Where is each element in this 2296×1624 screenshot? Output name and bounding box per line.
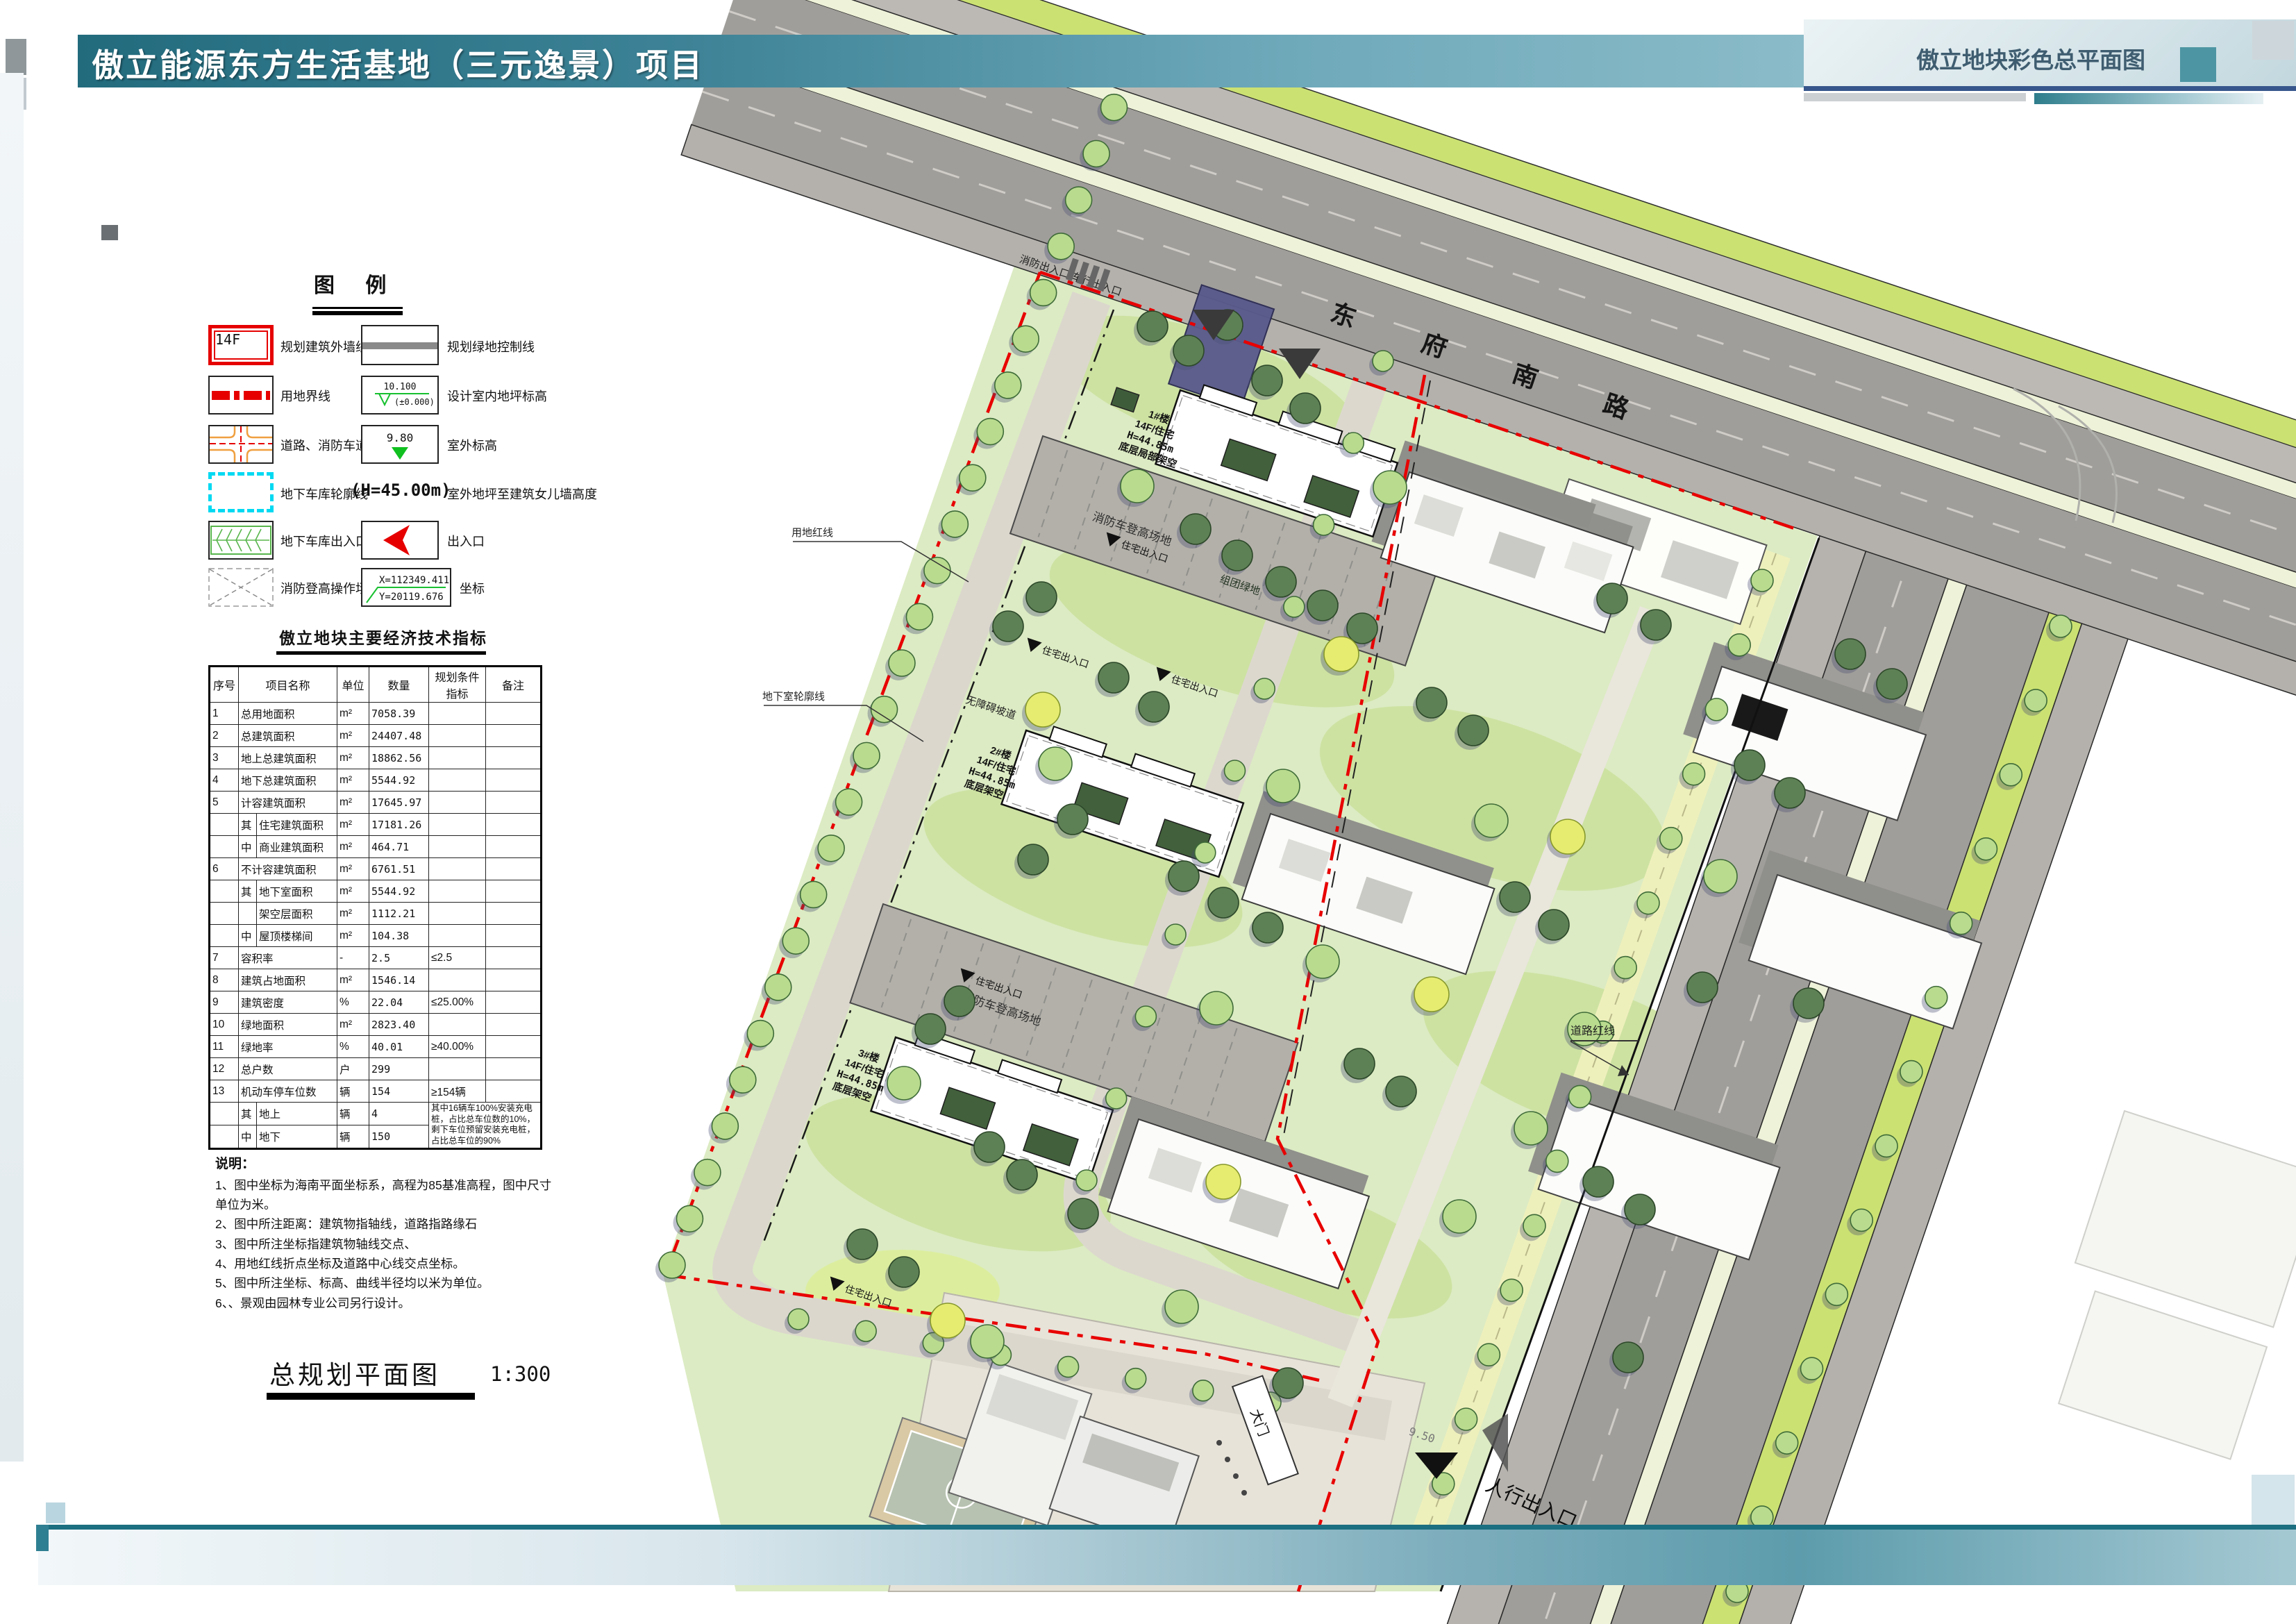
table-cell [239,903,257,925]
table-cell: 2.5 [369,947,429,969]
table-cell [429,1014,486,1036]
entrance-swatch [361,521,439,560]
economic-indicator-table: 序号 项目名称 单位 数量 规划条件指标 备注 1总用地面积m²7058.39 … [208,665,542,1150]
table-row: 11绿地率%40.01≥40.00% [210,1036,542,1058]
table-cell: 商业建筑面积 [257,836,337,858]
note-item: 6、、景观由园林专业公司另行设计。 [215,1294,562,1313]
table-cell: 计容建筑面积 [239,792,337,814]
table-cell: m² [337,814,369,836]
table-row: 4地下总建筑面积m²5544.92 [210,769,542,792]
indoor-elev-datum: (±0.000) [394,397,435,407]
table-cell: 总户数 [239,1058,337,1080]
table-cell: 2823.40 [369,1014,429,1036]
table-cell: 11 [210,1036,239,1058]
table-cell: 7 [210,947,239,969]
table-cell-remark: 其中16辆车100%安装充电桩，占比总车位数的10%，剩下车位预留安装充电桩，占… [429,1103,542,1149]
table-row: 中屋顶楼梯间m²104.38 [210,925,542,947]
table-cell: m² [337,836,369,858]
table-cell [486,858,542,880]
table-cell [486,903,542,925]
sheet-title: 傲立能源东方生活基地（三元逸景）项目 [92,40,704,86]
table-cell: 12 [210,1058,239,1080]
table-cell: 104.38 [369,925,429,947]
table-row: 10绿地面积m²2823.40 [210,1014,542,1036]
table-cell [429,725,486,747]
table-row: 架空层面积m²1112.21 [210,903,542,925]
table-cell: m² [337,725,369,747]
table-cell: 18862.56 [369,747,429,769]
table-cell [429,969,486,991]
table-cell: 5544.92 [369,769,429,792]
outdoor-elevation-swatch: 9.80 [361,425,439,464]
table-row: 12总户数户299 [210,1058,542,1080]
note-item: 5、图中所注坐标、标高、曲线半径均以米为单位。 [215,1273,562,1293]
table-cell [429,769,486,792]
table-cell [429,903,486,925]
table-cell [486,880,542,903]
legend-label: 设计室内地坪标高 [447,387,547,405]
table-cell [429,703,486,725]
coordinate-swatch: X=112349.411 Y=20119.676 [361,568,451,607]
margin-mark [101,225,118,240]
header-underline [1804,86,2296,91]
table-row: 6不计容建筑面积m²6761.51 [210,858,542,880]
table-row: 1总用地面积m²7058.39 [210,703,542,725]
land-boundary-swatch [208,376,274,415]
legend-label: 用地界线 [280,387,330,405]
road-redline-label: 道路红线 [1570,1025,1615,1037]
table-cell [429,880,486,903]
table-cell: 8 [210,969,239,991]
table-cell [210,814,239,836]
table-cell [486,836,542,858]
table-cell [429,925,486,947]
legend-label: 地下车库出入口 [280,532,368,550]
table-cell: 17181.26 [369,814,429,836]
coord-y: Y=20119.676 [379,592,444,603]
table-cell: - [337,947,369,969]
header-teal-gradient [2034,93,2263,104]
table-cell [486,1036,542,1058]
note-item: 1、图中坐标为海南平面坐标系，高程为85基准高程，图中尺寸单位为米。 [215,1175,562,1215]
table-header: 单位 [337,667,369,703]
table-cell: 中 [239,836,257,858]
table-cell: 17645.97 [369,792,429,814]
table-cell [429,858,486,880]
table-row: 其地下室面积m²5544.92 [210,880,542,903]
table-cell: 户 [337,1058,369,1080]
table-cell: 其 [239,880,257,903]
table-row: 3地上总建筑面积m²18862.56 [210,747,542,769]
plan-title-underline [267,1393,475,1400]
table-header: 备注 [486,667,542,703]
road-redline-underline [1570,1040,1639,1041]
table-row: 2总建筑面积m²24407.48 [210,725,542,747]
table-cell: 2 [210,725,239,747]
table-cell [486,1058,542,1080]
table-title-underline [276,651,486,655]
table-cell: 464.71 [369,836,429,858]
table-row: 中商业建筑面积m²464.71 [210,836,542,858]
table-cell [210,925,239,947]
table-cell: % [337,991,369,1014]
table-cell [210,836,239,858]
table-cell: m² [337,880,369,903]
table-cell: 9 [210,991,239,1014]
table-cell [486,1014,542,1036]
legend-label: 室外标高 [447,436,497,454]
table-row: 其地上辆4其中16辆车100%安装充电桩，占比总车位数的10%，剩下车位预留安装… [210,1103,542,1125]
table-cell [486,769,542,792]
indoor-elev-value: 10.100 [384,382,417,392]
footer-square-light [46,1502,65,1523]
legend-label: 出入口 [447,532,485,550]
footer-band [38,1530,2296,1585]
table-cell: 总建筑面积 [239,725,337,747]
table-cell: m² [337,703,369,725]
notes-title: 说明： [215,1154,562,1175]
table-cell [486,725,542,747]
table-cell: 总用地面积 [239,703,337,725]
table-cell: 辆 [337,1125,369,1148]
garage-entrance-swatch [208,521,274,560]
road-swatch [208,425,274,464]
table-header: 规划条件指标 [429,667,486,703]
table-cell: 建筑密度 [239,991,337,1014]
table-cell: ≤2.5 [429,947,486,969]
plan-title: 总规划平面图 [269,1354,440,1391]
table-cell: m² [337,769,369,792]
table-cell [429,814,486,836]
table-cell [210,1125,239,1148]
table-cell: 3 [210,747,239,769]
table-cell: 地下室面积 [257,880,337,903]
table-cell: ≥40.00% [429,1036,486,1058]
table-cell [486,814,542,836]
basement-label: 地下室轮廓线 [762,691,825,703]
legend-label: 道路、消防车道 [280,436,368,454]
coord-x: X=112349.411 [379,575,449,586]
table-cell: 中 [239,1125,257,1148]
table-cell [429,747,486,769]
legend-title: 图 例 [314,268,399,299]
table-cell [486,1080,542,1103]
drawing-sheet: 东 府 南 路 消防出入口 车行出入口 [0,0,2296,1624]
table-cell [486,991,542,1014]
table-cell [429,1058,486,1080]
table-cell [486,747,542,769]
table-row: 5计容建筑面积m²17645.97 [210,792,542,814]
footer-square-right [2252,1475,2295,1525]
legend-label: 室外地坪至建筑女儿墙高度 [447,485,597,503]
table-cell: 不计容建筑面积 [239,858,337,880]
table-cell [486,703,542,725]
swatch-floors-text: 14F [215,331,240,348]
table-cell: 6761.51 [369,858,429,880]
table-cell: ≤25.00% [429,991,486,1014]
plan-scale: 1:300 [490,1362,551,1386]
table-cell: m² [337,969,369,991]
table-cell: 绿地面积 [239,1014,337,1036]
table-header-row: 序号 项目名称 单位 数量 规划条件指标 备注 [210,667,542,703]
table-cell: 5544.92 [369,880,429,903]
table-cell: m² [337,858,369,880]
table-cell: % [337,1036,369,1058]
table-cell: 地下 [257,1125,337,1148]
garage-outline-swatch [208,472,274,512]
legend-underline-2 [312,311,403,315]
corner-square-right [2252,21,2294,60]
building-outline-swatch: 14F [208,325,274,365]
green-control-swatch [361,325,439,365]
table-cell [210,1103,239,1125]
table-cell: 机动车停车位数 [239,1080,337,1103]
table-row: 7容积率-2.5≤2.5 [210,947,542,969]
table-cell: 架空层面积 [257,903,337,925]
parapet-height-value: (H=45.00m) [351,480,451,500]
table-cell: 22.04 [369,991,429,1014]
table-cell: 10 [210,1014,239,1036]
note-item: 3、图中所注坐标指建筑物轴线交点、 [215,1234,562,1254]
table-cell: 40.01 [369,1036,429,1058]
boundary-label: 用地红线 [791,527,833,539]
table-row: 8建筑占地面积m²1546.14 [210,969,542,991]
notes-block: 说明： 1、图中坐标为海南平面坐标系，高程为85基准高程，图中尺寸单位为米。 2… [215,1154,562,1313]
table-cell: 绿地率 [239,1036,337,1058]
table-cell: m² [337,792,369,814]
corner-square-dark [6,39,26,75]
table-cell: 1 [210,703,239,725]
indoor-elevation-swatch: 10.100 (±0.000) [361,376,439,415]
footer-rule [38,1525,2296,1530]
table-cell: 1546.14 [369,969,429,991]
table-cell [486,969,542,991]
table-row: 其住宅建筑面积m²17181.26 [210,814,542,836]
table-cell [486,947,542,969]
table-cell: 地上总建筑面积 [239,747,337,769]
table-cell: m² [337,747,369,769]
header-accent-square [2180,47,2216,82]
table-cell: 辆 [337,1080,369,1103]
outdoor-elev-value: 9.80 [387,431,414,444]
table-cell: m² [337,925,369,947]
table-cell: 其 [239,1103,257,1125]
table-cell: 4 [210,769,239,792]
table-cell: 5 [210,792,239,814]
table-cell [210,903,239,925]
footer-square-teal [36,1525,49,1551]
legend-underline-1 [312,307,403,309]
table-cell: 154 [369,1080,429,1103]
table-cell: 屋顶楼梯间 [257,925,337,947]
table-cell: 299 [369,1058,429,1080]
table-cell: 1112.21 [369,903,429,925]
table-cell: 7058.39 [369,703,429,725]
table-cell: 中 [239,925,257,947]
table-cell: 辆 [337,1103,369,1125]
header-gray-bar [1804,93,2026,101]
table-cell [429,792,486,814]
legend-label: 规划绿地控制线 [447,337,535,355]
table-cell: 建筑占地面积 [239,969,337,991]
table-cell: 6 [210,858,239,880]
table-cell [486,925,542,947]
table-cell: 住宅建筑面积 [257,814,337,836]
table-cell: 地下总建筑面积 [239,769,337,792]
table-title: 傲立地块主要经济技术指标 [279,625,487,648]
table-cell [429,836,486,858]
table-cell: 4 [369,1103,429,1125]
table-cell: m² [337,903,369,925]
table-cell: 13 [210,1080,239,1103]
far-east-parcel [2032,1111,2296,1459]
table-cell [210,880,239,903]
table-row: 13机动车停车位数辆154≥154辆 [210,1080,542,1103]
table-cell: 150 [369,1125,429,1148]
note-item: 2、图中所注距离：建筑物指轴线，道路指路缘石 [215,1214,562,1234]
legend-label: 坐标 [460,579,485,597]
table-cell: 地上 [257,1103,337,1125]
table-cell: 容积率 [239,947,337,969]
table-cell [486,792,542,814]
table-header: 数量 [369,667,429,703]
fire-field-swatch [208,568,274,607]
table-cell: 其 [239,814,257,836]
table-row: 9建筑密度%22.04≤25.00% [210,991,542,1014]
sheet-subtitle: 傲立地块彩色总平面图 [1833,42,2145,75]
table-cell: m² [337,1014,369,1036]
table-cell: 24407.48 [369,725,429,747]
left-edge-strip [0,73,24,1462]
note-item: 4、用地红线折点坐标及道路中心线交点坐标。 [215,1254,562,1273]
table-header: 序号 [210,667,239,703]
table-cell: ≥154辆 [429,1080,486,1103]
table-header: 项目名称 [239,667,337,703]
